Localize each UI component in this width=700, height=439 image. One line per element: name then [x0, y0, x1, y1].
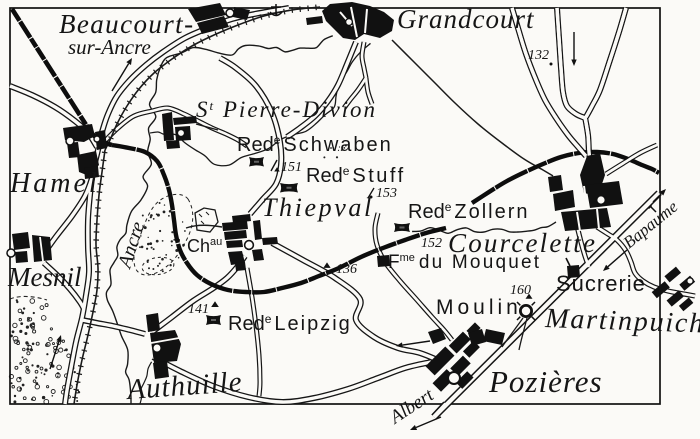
svg-text:152: 152 — [421, 236, 442, 251]
svg-text:RedeLeipzig: RedeLeipzig — [228, 312, 352, 335]
svg-text:Pozières: Pozières — [488, 364, 603, 399]
svg-text:Grandcourt: Grandcourt — [397, 4, 535, 34]
svg-text:RedeSchwaben: RedeSchwaben — [237, 133, 393, 156]
svg-text:Mesnil: Mesnil — [7, 262, 82, 292]
svg-text:Thiepval: Thiepval — [262, 193, 374, 222]
svg-text:136: 136 — [336, 262, 357, 277]
svg-text:153: 153 — [376, 186, 397, 201]
svg-text:Moulin: Moulin — [436, 296, 522, 319]
svg-text:RedeZollern: RedeZollern — [408, 200, 530, 223]
svg-text:RedeStuff: RedeStuff — [306, 164, 406, 187]
svg-text:St Pierre-Divion: St Pierre-Divion — [196, 97, 377, 122]
svg-text:132: 132 — [528, 48, 549, 63]
svg-text:Martinpuich: Martinpuich — [544, 303, 700, 340]
svg-text:Hamel: Hamel — [9, 168, 100, 199]
svg-text:141: 141 — [188, 302, 209, 317]
svg-text:151: 151 — [281, 160, 302, 175]
svg-text:Sucrerie: Sucrerie — [556, 271, 646, 296]
svg-text:160: 160 — [510, 283, 531, 298]
svg-text:sur-Ancre: sur-Ancre — [68, 35, 151, 59]
